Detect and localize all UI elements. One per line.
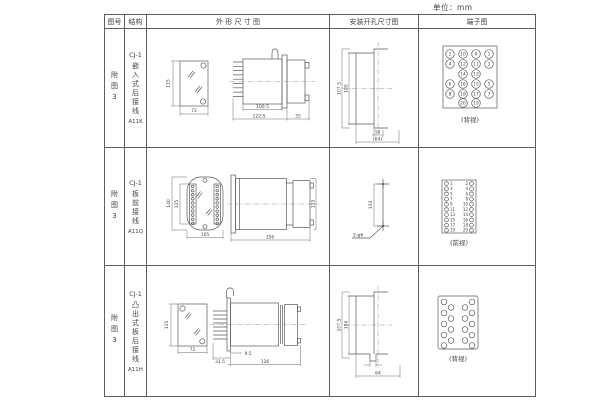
terminal-circles — [446, 50, 494, 108]
dim-label: 72 — [191, 108, 197, 114]
dim-label: 100.5 — [256, 104, 269, 110]
terminal-numbers: 2 10 9 1 4 12 11 3 14 13 6 16 15 5 8 18 — [449, 52, 491, 107]
front-view: 115 72 — [166, 61, 209, 116]
structure-code-label: A11H — [128, 367, 143, 373]
dim-label: 104 — [344, 321, 350, 330]
dim-label: 31.5 — [215, 359, 225, 365]
terminal-number: 12 — [460, 62, 466, 68]
terminal-number: 13 — [473, 72, 479, 78]
units-label: 单位：mm — [433, 2, 473, 13]
terminal-number: 1 — [488, 52, 491, 58]
dim-label: 107.5 — [337, 82, 343, 95]
row1-figure-cell: 附图3 — [105, 29, 125, 148]
terminal-number: 19 — [473, 101, 479, 107]
dim-label: 125 — [174, 200, 180, 209]
terminal-number: 19 — [450, 228, 456, 233]
terminal-circles — [445, 182, 474, 233]
header-mounting: 安装开孔尺寸图 — [330, 15, 419, 29]
terminal-strip-holes — [191, 185, 218, 225]
terminal-number: 20 — [463, 228, 469, 233]
figure-number: 附图3 — [110, 314, 120, 348]
front-view: 115 72 — [164, 304, 207, 354]
terminal-number: 2 — [449, 52, 452, 58]
terminal-number: 5 — [488, 82, 491, 88]
model-label: CJ-1 — [129, 179, 142, 187]
model-label: CJ-1 — [129, 51, 142, 59]
row3-outline-cell: 115 72 31.5 9.5 126 — [147, 266, 330, 396]
dimensions-table: 图号 结构 外 形 尺 寸 图 安装开孔尺寸图 端子图 附图3 CJ-1 嵌入式… — [104, 14, 536, 397]
terminal-number: 20 — [460, 101, 466, 107]
figure-number: 附图3 — [110, 71, 120, 105]
terminal-diagram-row2: 1 3 5 7 9 11 13 15 17 19 2 4 6 8 10 12 1 — [419, 148, 535, 266]
structure-code-label: A11Q — [128, 229, 143, 235]
row3-mounting-cell: 107.5 104 64 — [330, 266, 419, 396]
terminal-number: 14 — [460, 72, 466, 78]
dim-label: 126 — [261, 359, 270, 365]
dim-label: 105 — [201, 232, 210, 238]
dim-label: 133 — [368, 201, 374, 210]
side-view: 31.5 9.5 126 — [210, 288, 307, 366]
row2-mounting-cell: 133 2-φ6 — [330, 148, 419, 266]
terminal-circles — [441, 299, 475, 348]
dim-label: 140 — [166, 199, 172, 208]
row3-structure-cell: CJ-1 凸出式板后接线 A11H — [125, 266, 147, 396]
structure-type-label: 嵌入式后接线 — [131, 62, 141, 116]
dim-label: 105 — [344, 84, 350, 93]
row1-terminal-cell: 2 10 9 1 4 12 11 3 14 13 6 16 15 5 8 18 — [419, 29, 535, 148]
datasheet-page: 单位：mm 图号 结构 外 形 尺 寸 图 安装开孔尺寸图 端子图 附图3 CJ… — [0, 0, 600, 400]
row3-terminal-cell: (背视) — [419, 266, 535, 396]
terminal-number: 17 — [473, 92, 479, 98]
terminal-diagram-row1: 2 10 9 1 4 12 11 3 14 13 6 16 15 5 8 18 — [419, 29, 535, 148]
side-view: 156 115 — [227, 175, 319, 242]
dim-label: 115 — [164, 321, 170, 330]
row2-structure-cell: CJ-1 板前接线 A11Q — [125, 148, 147, 266]
dim-label: 122.5 — [253, 113, 266, 119]
dim-label: 64 — [375, 370, 381, 376]
header-figure-no: 图号 — [105, 15, 125, 29]
structure-type-label: 凸出式板后接线 — [131, 301, 141, 364]
mounting-diagram-row3: 107.5 104 64 — [330, 266, 419, 396]
mounting-diagram-row2: 133 2-φ6 — [330, 148, 419, 266]
view-caption: (背视) — [461, 115, 479, 124]
row2-figure-cell: 附图3 — [105, 148, 125, 266]
terminal-number: 10 — [460, 52, 466, 58]
dim-label: 16 — [375, 130, 381, 136]
outline-diagram-row2: 140 125 105 156 115 — [147, 148, 330, 266]
structure-code-label: A11K — [128, 119, 142, 125]
row1-mounting-cell: 107.5 105 16 (64) — [330, 29, 419, 148]
dim-label: 9.5 — [245, 351, 252, 357]
terminal-number: 18 — [460, 92, 466, 98]
row2-terminal-cell: 1 3 5 7 9 11 13 15 17 19 2 4 6 8 10 12 1 — [419, 148, 535, 266]
row1-structure-cell: CJ-1 嵌入式后接线 A11K — [125, 29, 147, 148]
dim-label: 107.5 — [337, 318, 343, 331]
dim-label: 115 — [166, 79, 172, 88]
terminal-number: 8 — [449, 92, 452, 98]
header-outline: 外 形 尺 寸 图 — [147, 15, 330, 29]
dim-label: 115 — [311, 200, 317, 209]
terminal-number: 6 — [449, 82, 452, 88]
terminal-number: 4 — [449, 62, 452, 68]
dim-label: 35 — [295, 113, 301, 119]
dim-label: 156 — [266, 234, 275, 240]
mounting-diagram-row1: 107.5 105 16 (64) — [330, 29, 419, 148]
view-caption: (前视) — [450, 238, 468, 247]
hole-note-label: 2-φ6 — [353, 233, 363, 239]
terminal-diagram-row3: (背视) — [419, 266, 535, 396]
dim-label: (64) — [373, 137, 382, 143]
view-caption: (背视) — [449, 354, 467, 363]
structure-type-label: 板前接线 — [131, 190, 141, 226]
row2-outline-cell: 140 125 105 156 115 — [147, 148, 330, 266]
header-terminal: 端子图 — [419, 15, 535, 29]
row3-figure-cell: 附图3 — [105, 266, 125, 396]
terminal-number: 7 — [488, 92, 491, 98]
front-view: 140 125 105 — [166, 177, 223, 239]
terminal-number: 16 — [460, 82, 466, 88]
dim-label: 72 — [190, 347, 196, 353]
model-label: CJ-1 — [129, 290, 142, 298]
outline-diagram-row3: 115 72 31.5 9.5 126 — [147, 266, 330, 396]
header-structure: 结构 — [125, 15, 147, 29]
terminal-number: 15 — [473, 82, 479, 88]
terminal-number: 11 — [473, 62, 479, 68]
row1-outline-cell: 115 72 100.5 122.5 35 — [147, 29, 330, 148]
side-view: 100.5 122.5 35 — [230, 49, 315, 121]
terminal-number: 3 — [488, 62, 491, 68]
figure-number: 附图3 — [110, 190, 120, 224]
terminal-number: 9 — [475, 52, 478, 58]
terminal-numbers: 1 3 5 7 9 11 13 15 17 19 2 4 6 8 10 12 1 — [450, 181, 468, 233]
outline-diagram-row1: 115 72 100.5 122.5 35 — [147, 29, 330, 148]
